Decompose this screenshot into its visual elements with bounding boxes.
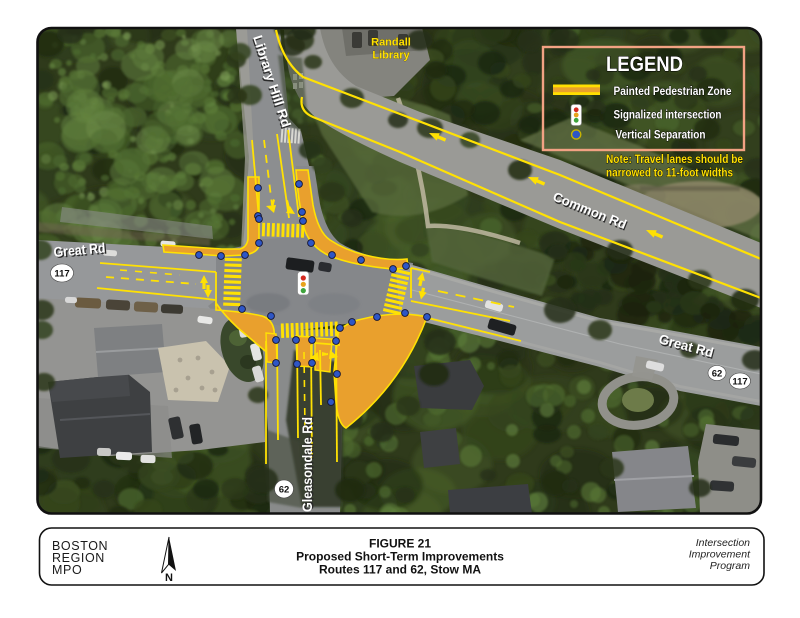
svg-text:117: 117	[732, 376, 747, 387]
svg-text:Vertical Separation: Vertical Separation	[616, 128, 706, 142]
svg-text:Library: Library	[372, 50, 410, 62]
svg-text:Gleasondale Rd: Gleasondale Rd	[300, 417, 315, 512]
svg-text:Program: Program	[710, 560, 751, 572]
svg-text:62: 62	[712, 368, 723, 379]
svg-text:N: N	[165, 572, 173, 584]
svg-text:117: 117	[54, 268, 69, 279]
svg-text:Painted Pedestrian Zone: Painted Pedestrian Zone	[614, 84, 732, 98]
svg-text:Signalized intersection: Signalized intersection	[614, 108, 722, 122]
svg-text:LEGEND: LEGEND	[606, 53, 683, 76]
svg-text:Improvement: Improvement	[689, 549, 751, 561]
svg-text:Proposed Short-Term Improvemen: Proposed Short-Term Improvements	[296, 550, 504, 564]
svg-text:narrowed to 11-foot widths: narrowed to 11-foot widths	[606, 166, 733, 180]
svg-text:62: 62	[279, 484, 290, 495]
svg-text:Note: Travel lanes should be: Note: Travel lanes should be	[606, 152, 743, 166]
svg-text:Routes 117 and 62, Stow MA: Routes 117 and 62, Stow MA	[319, 563, 481, 577]
svg-text:MPO: MPO	[52, 563, 82, 577]
svg-text:FIGURE 21: FIGURE 21	[369, 537, 431, 551]
svg-text:Randall: Randall	[371, 37, 411, 49]
svg-text:Intersection: Intersection	[696, 537, 750, 549]
